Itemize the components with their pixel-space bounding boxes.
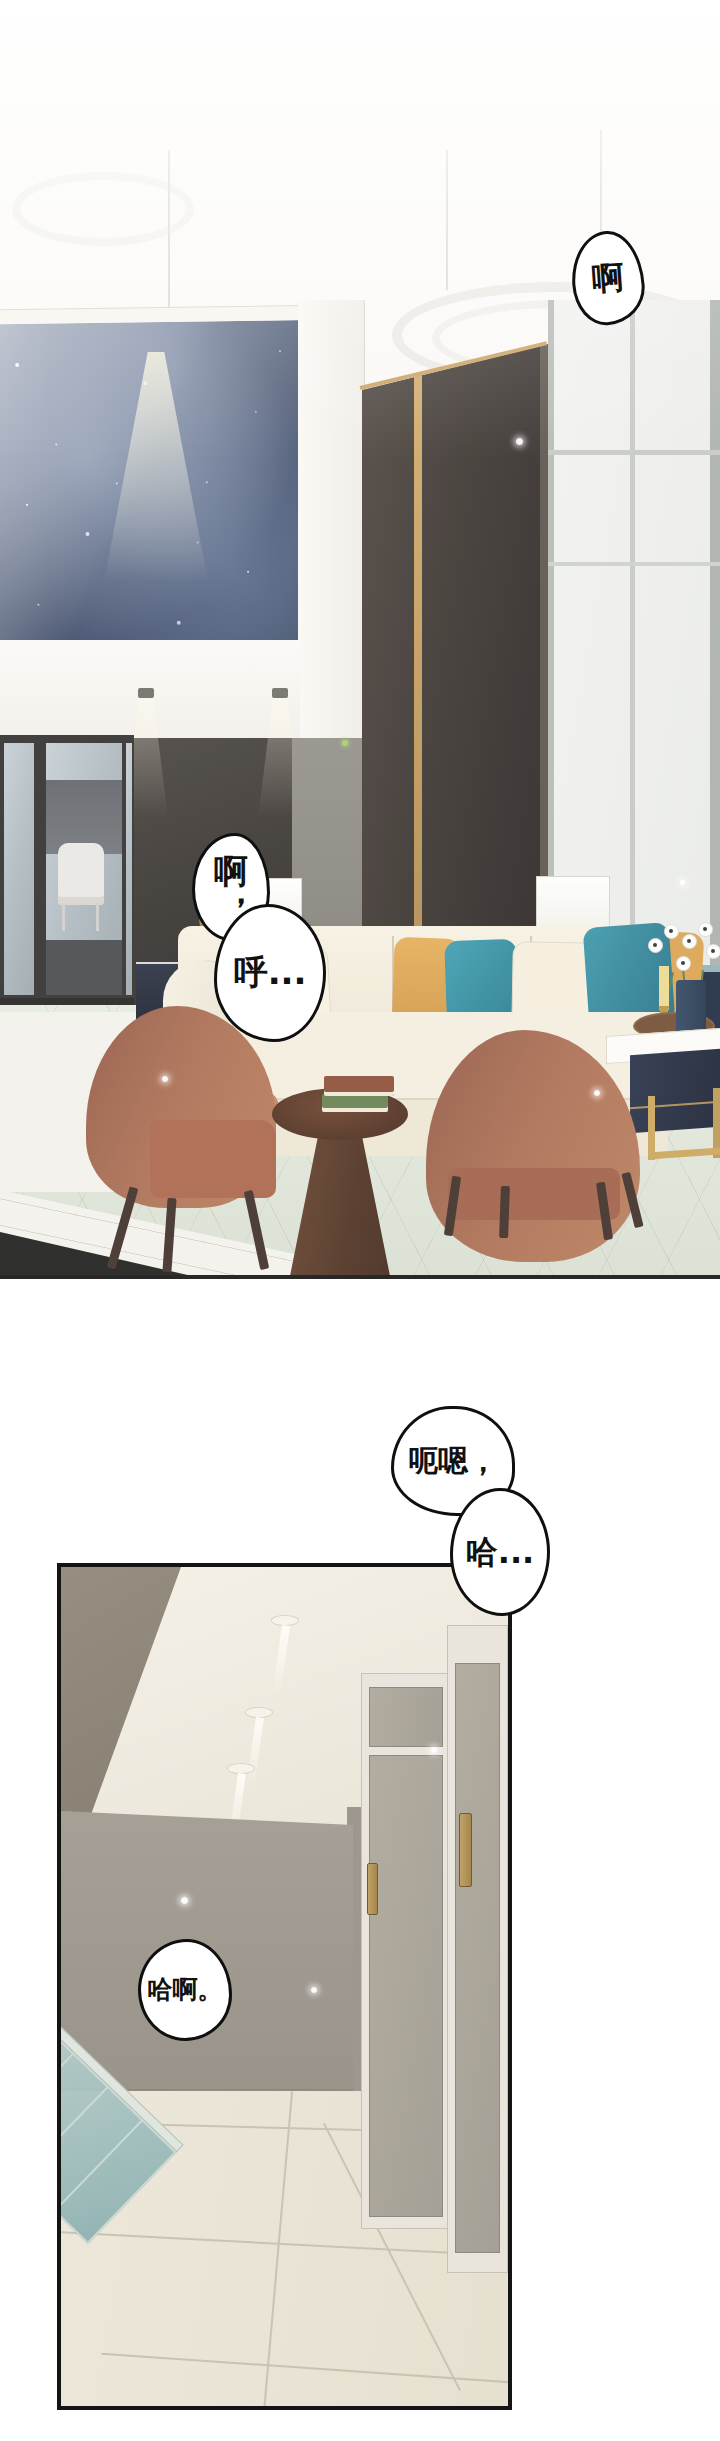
sparkle (431, 1747, 437, 1753)
brown-book (324, 1076, 394, 1096)
bubble-text: 哈... (466, 1534, 534, 1571)
chandelier-cord (446, 150, 448, 290)
white-flower (664, 924, 679, 939)
speech-bubble-hu: 呼... (214, 904, 326, 1042)
sparkle (311, 1987, 317, 1993)
sparkle (516, 438, 523, 445)
chair-leg (62, 903, 65, 931)
glass-pane (126, 743, 132, 995)
bubble-text: 呃嗯， (408, 1444, 498, 1479)
glass-sliding-doors (0, 735, 134, 1014)
panel-hallway (57, 1563, 512, 2410)
bubble-text: 哈啊。 (148, 1976, 223, 2005)
near-door (455, 1663, 500, 2253)
chair-leg (96, 903, 99, 931)
bubble-text: 啊 ， (214, 855, 248, 920)
panel-living-room (0, 0, 720, 1279)
sparkle-green (342, 740, 348, 746)
bubble-text: 啊 (591, 259, 625, 298)
starry-night-artwork (0, 306, 343, 689)
bubble-punct: ， (224, 875, 258, 907)
speech-bubble-ha-ah: 哈啊。 (138, 1939, 232, 2041)
pendant-cord (168, 150, 170, 332)
sparkle (594, 1090, 600, 1096)
white-flower (698, 922, 713, 937)
glass-pane (4, 743, 34, 995)
far-door-handle (367, 1863, 378, 1915)
downlight (272, 688, 288, 698)
downlight (138, 688, 154, 698)
green-book (322, 1094, 388, 1112)
floor-through-glass (46, 940, 122, 995)
glass-frame (548, 562, 720, 566)
coffee-table-body (630, 1049, 720, 1133)
chair-through-glass (58, 843, 104, 905)
near-door-handle (459, 1813, 472, 1887)
speech-bubble-ha: 哈... (450, 1488, 550, 1616)
chair-leg (499, 1186, 510, 1238)
yellow-candle (659, 966, 669, 1010)
white-flower (648, 938, 663, 953)
light-wash (0, 320, 328, 675)
white-pillar (298, 300, 365, 745)
ceiling-ring-light-faint (12, 172, 194, 246)
white-flower (682, 934, 697, 949)
far-door-transom (369, 1687, 443, 1747)
white-flower (676, 956, 691, 971)
armchair-right-base (448, 1168, 620, 1220)
far-door (369, 1755, 443, 2217)
glass-frame (548, 450, 720, 455)
gold-trim (630, 1101, 720, 1109)
coffee-table-gold-leg (648, 1096, 655, 1160)
sparkle (162, 1076, 168, 1082)
white-flower (706, 944, 720, 959)
armchair-left-base (150, 1120, 276, 1198)
comic-page: 啊 啊 ， 呼... 呃嗯， 哈... 哈啊。 (0, 0, 720, 2441)
sparkle (680, 880, 685, 885)
bubble-text: 呼... (234, 953, 307, 992)
sparkle (181, 1897, 188, 1904)
panel1-bottom-border (0, 1275, 720, 1279)
